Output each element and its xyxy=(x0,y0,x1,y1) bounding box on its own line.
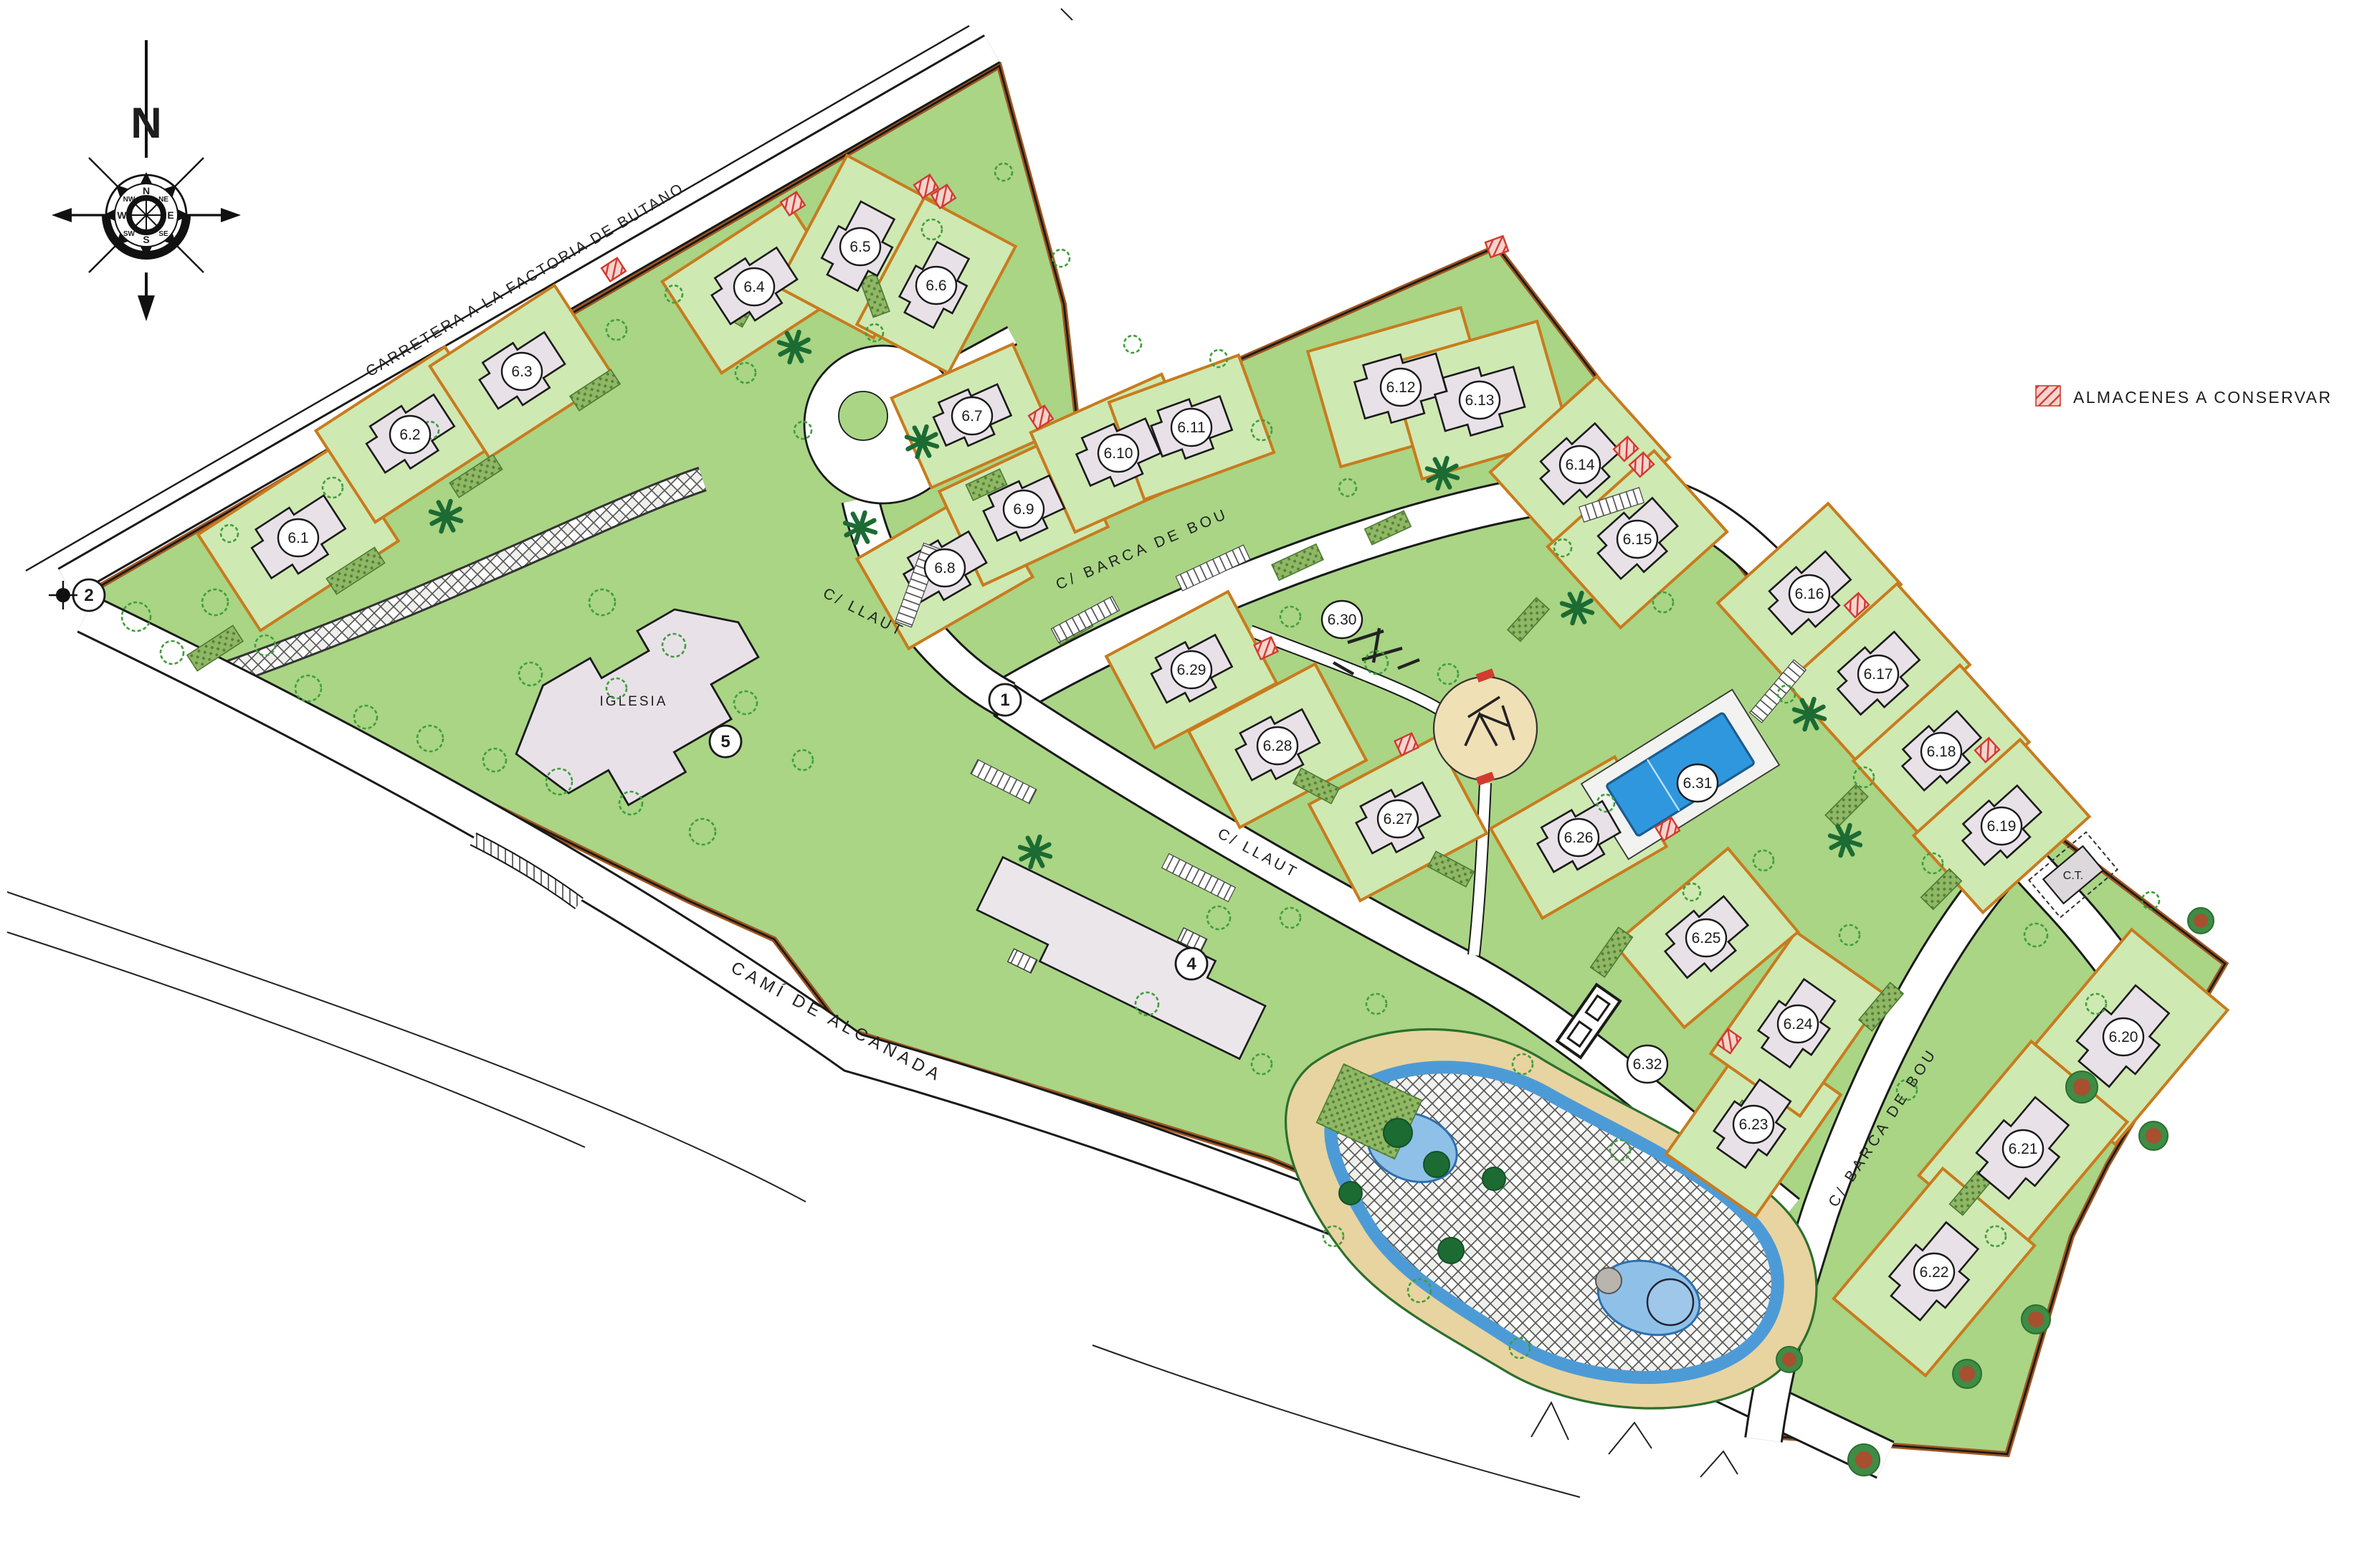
plot-number-6.28: 6.28 xyxy=(1263,738,1293,754)
plot-number-6.26: 6.26 xyxy=(1564,830,1594,846)
plot-number-6.6: 6.6 xyxy=(925,277,946,294)
plot-number-6.24: 6.24 xyxy=(1784,1016,1813,1033)
red-tree-foliage xyxy=(2028,1311,2044,1327)
plot-marker-6.11: 6.11 xyxy=(1171,409,1212,446)
dark-tree-icon xyxy=(1424,1152,1450,1177)
zone-marker-2: 2 xyxy=(73,579,105,611)
cul-de-sac-island xyxy=(839,392,887,440)
compass-point-SW: SW xyxy=(123,230,135,238)
plot-marker-6.20: 6.20 xyxy=(2103,1018,2143,1055)
plot-marker-6.6: 6.6 xyxy=(916,267,956,304)
plot-marker-6.22: 6.22 xyxy=(1914,1253,1954,1291)
legend-swatch-almacenes xyxy=(2036,386,2060,406)
iglesia-label: IGLESIA xyxy=(600,694,668,709)
legend: ALMACENES A CONSERVAR xyxy=(2036,386,2332,407)
plot-marker-6.12: 6.12 xyxy=(1381,369,1421,406)
plot-number-6.13: 6.13 xyxy=(1465,392,1495,409)
plot-marker-6.2: 6.2 xyxy=(390,416,430,453)
plot-number-6.15: 6.15 xyxy=(1623,531,1652,548)
plot-marker-6.1: 6.1 xyxy=(278,519,318,556)
zone-number-2: 2 xyxy=(84,586,93,605)
plot-number-6.2: 6.2 xyxy=(399,427,420,443)
plot-number-6.19: 6.19 xyxy=(1987,818,2017,835)
compass-point-SE: SE xyxy=(158,230,168,238)
plot-number-6.18: 6.18 xyxy=(1927,744,1956,760)
red-tree-foliage xyxy=(2146,1128,2161,1144)
red-tree-foliage xyxy=(2073,1078,2090,1096)
red-tree-foliage xyxy=(2194,914,2208,928)
plot-number-6.14: 6.14 xyxy=(1566,457,1595,473)
plot-marker-6.30: 6.30 xyxy=(1322,601,1362,638)
plot-marker-6.28: 6.28 xyxy=(1257,727,1298,764)
plot-marker-6.9: 6.9 xyxy=(1004,490,1044,528)
plot-number-6.30: 6.30 xyxy=(1328,612,1357,628)
plot-number-6.23: 6.23 xyxy=(1739,1116,1769,1133)
plot-number-6.12: 6.12 xyxy=(1386,379,1416,396)
plot-marker-6.8: 6.8 xyxy=(925,549,965,587)
plot-marker-6.10: 6.10 xyxy=(1098,435,1138,472)
plot-number-6.16: 6.16 xyxy=(1795,586,1824,602)
plot-number-6.5: 6.5 xyxy=(849,239,870,255)
plot-marker-6.15: 6.15 xyxy=(1617,521,1657,558)
site-plan-canvas: IGLESIA C.T. xyxy=(0,0,2380,1556)
plot-marker-6.31: 6.31 xyxy=(1677,764,1718,802)
plot-number-6.1: 6.1 xyxy=(287,530,308,546)
red-tree-foliage xyxy=(1782,1352,1796,1367)
ct-label: C.T. xyxy=(2063,870,2083,882)
plot-number-6.3: 6.3 xyxy=(511,364,532,380)
plot-marker-6.29: 6.29 xyxy=(1171,651,1212,688)
compass-point-W: W xyxy=(117,209,127,221)
plot-number-6.21: 6.21 xyxy=(2009,1141,2038,1157)
plot-number-6.20: 6.20 xyxy=(2109,1029,2138,1045)
compass-point-NW: NW xyxy=(123,196,135,204)
plot-number-6.31: 6.31 xyxy=(1683,775,1713,792)
plot-marker-6.7: 6.7 xyxy=(952,397,992,435)
plot-number-6.27: 6.27 xyxy=(1384,811,1413,827)
plot-number-6.29: 6.29 xyxy=(1177,662,1206,678)
plot-marker-6.5: 6.5 xyxy=(840,228,880,265)
plot-marker-6.25: 6.25 xyxy=(1686,919,1726,957)
plot-marker-6.17: 6.17 xyxy=(1858,655,1898,693)
zone-number-4: 4 xyxy=(1186,954,1196,974)
dark-tree-icon xyxy=(1384,1119,1412,1147)
plot-number-6.32: 6.32 xyxy=(1633,1056,1662,1073)
zone-marker-4: 4 xyxy=(1176,948,1207,979)
plot-marker-6.27: 6.27 xyxy=(1378,800,1418,838)
plot-marker-6.16: 6.16 xyxy=(1789,575,1829,612)
plot-marker-6.4: 6.4 xyxy=(734,268,774,305)
plot-marker-6.26: 6.26 xyxy=(1558,819,1599,856)
plot-number-6.4: 6.4 xyxy=(743,279,765,295)
pond-gravel-islet xyxy=(1596,1268,1622,1294)
plot-number-6.11: 6.11 xyxy=(1177,419,1205,436)
plot-number-6.9: 6.9 xyxy=(1013,501,1034,518)
compass-point-E: E xyxy=(167,209,173,221)
plot-number-6.17: 6.17 xyxy=(1864,666,1893,683)
zone-number-5: 5 xyxy=(720,732,730,751)
plot-marker-6.14: 6.14 xyxy=(1560,446,1600,483)
plot-marker-6.32: 6.32 xyxy=(1627,1045,1667,1083)
compass-north-letter: N xyxy=(130,99,161,147)
plot-marker-6.21: 6.21 xyxy=(2003,1130,2043,1167)
red-tree-foliage xyxy=(1959,1366,1975,1382)
compass-point-S: S xyxy=(143,234,149,245)
plot-marker-6.24: 6.24 xyxy=(1778,1005,1818,1043)
plot-number-6.8: 6.8 xyxy=(934,560,955,577)
plot-number-6.25: 6.25 xyxy=(1692,930,1721,947)
red-tree-foliage xyxy=(1855,1451,1872,1469)
plot-number-6.7: 6.7 xyxy=(961,408,982,424)
legend-label: ALMACENES A CONSERVAR xyxy=(2073,388,2332,407)
compass-point-NE: NE xyxy=(158,196,168,204)
zone-marker-1: 1 xyxy=(989,684,1021,716)
plot-marker-6.23: 6.23 xyxy=(1733,1106,1774,1143)
plot-number-6.10: 6.10 xyxy=(1104,445,1133,462)
zone-number-1: 1 xyxy=(1000,691,1009,710)
plot-number-6.22: 6.22 xyxy=(1920,1264,1949,1281)
plot-marker-6.13: 6.13 xyxy=(1460,381,1500,419)
zone-marker-5: 5 xyxy=(710,726,741,757)
plot-marker-6.18: 6.18 xyxy=(1921,733,1961,770)
plot-marker-6.19: 6.19 xyxy=(1981,807,2022,845)
plot-marker-6.3: 6.3 xyxy=(502,353,542,390)
dark-tree-icon xyxy=(1482,1167,1505,1190)
compass-point-N: N xyxy=(143,185,150,196)
dark-tree-icon xyxy=(1438,1238,1464,1263)
dark-tree-icon xyxy=(1339,1182,1362,1205)
